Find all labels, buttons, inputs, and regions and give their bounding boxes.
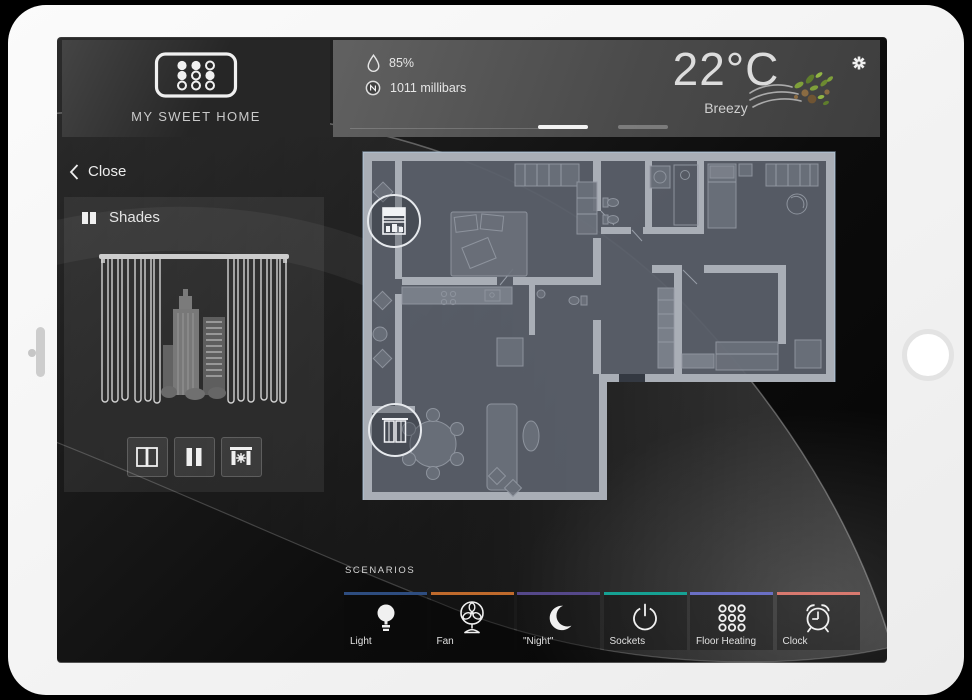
power-icon — [630, 603, 660, 633]
home-tile-label: MY SWEET HOME — [62, 109, 330, 124]
scenario-tile-clock[interactable]: Clock — [777, 592, 860, 650]
scenario-label: "Night" — [523, 636, 553, 647]
chevron-left-icon — [69, 164, 79, 180]
pause-icon — [186, 448, 202, 466]
home-tile[interactable]: MY SWEET HOME — [62, 40, 330, 137]
dot-grid-icon — [717, 603, 747, 633]
lightbulb-icon — [374, 603, 398, 633]
home-button[interactable] — [902, 329, 954, 381]
scenario-label: Sockets — [610, 636, 646, 647]
crescent-moon-icon — [545, 604, 573, 632]
barometer-icon — [365, 80, 381, 96]
tablet-frame: MY SWEET HOME 85% 1011 millibars 22°C Br… — [8, 5, 964, 695]
camera-dot — [28, 349, 36, 357]
roller-blind-icon — [366, 193, 422, 249]
curtains-illustration — [99, 249, 289, 415]
scenarios-row: Light Fan — [344, 592, 860, 650]
gear-icon[interactable] — [852, 56, 866, 70]
fan-icon — [458, 601, 486, 635]
scenario-label: Fan — [437, 636, 454, 647]
pause-shades-button[interactable] — [174, 437, 215, 477]
leaves-in-wind-icon — [747, 66, 835, 121]
page-indicator-track — [350, 128, 560, 129]
page-indicator-inactive[interactable] — [618, 125, 668, 129]
open-shades-button[interactable] — [127, 437, 168, 477]
scenario-tile-fan[interactable]: Fan — [431, 592, 514, 650]
scenario-label: Light — [350, 636, 372, 647]
curtains-closed-sun-icon — [230, 447, 252, 467]
scenario-label: Clock — [783, 636, 808, 647]
pressure-value: 1011 millibars — [390, 81, 466, 95]
scenario-tile-sockets[interactable]: Sockets — [604, 592, 687, 650]
alarm-clock-icon — [803, 602, 833, 634]
curtains-control[interactable] — [367, 402, 423, 458]
scenario-tile-floor-heating[interactable]: Floor Heating — [690, 592, 773, 650]
curtains-open-icon — [136, 447, 158, 467]
page-indicator-active[interactable] — [538, 125, 588, 129]
scenarios-heading: SCENARIOS — [345, 565, 415, 576]
shades-icon — [82, 211, 96, 225]
scenario-tile-night[interactable]: "Night" — [517, 592, 600, 650]
speaker-bar — [36, 327, 45, 377]
shades-title: Shades — [109, 209, 160, 226]
floor-plan — [345, 148, 838, 508]
screen: MY SWEET HOME 85% 1011 millibars 22°C Br… — [57, 37, 887, 663]
curtains-icon — [367, 402, 423, 458]
roller-blind-control[interactable] — [366, 193, 422, 249]
scenario-label: Floor Heating — [696, 636, 756, 647]
shades-panel: Shades — [64, 197, 324, 492]
droplet-icon — [367, 54, 380, 72]
weather-widget: 85% 1011 millibars 22°C Breezy — [333, 40, 880, 137]
keypad-dots-icon — [154, 52, 238, 98]
scenario-tile-light[interactable]: Light — [344, 592, 427, 650]
close-label: Close — [88, 163, 126, 180]
humidity-value: 85% — [389, 56, 414, 70]
close-button[interactable]: Close — [69, 163, 126, 180]
close-shades-button[interactable] — [221, 437, 262, 477]
